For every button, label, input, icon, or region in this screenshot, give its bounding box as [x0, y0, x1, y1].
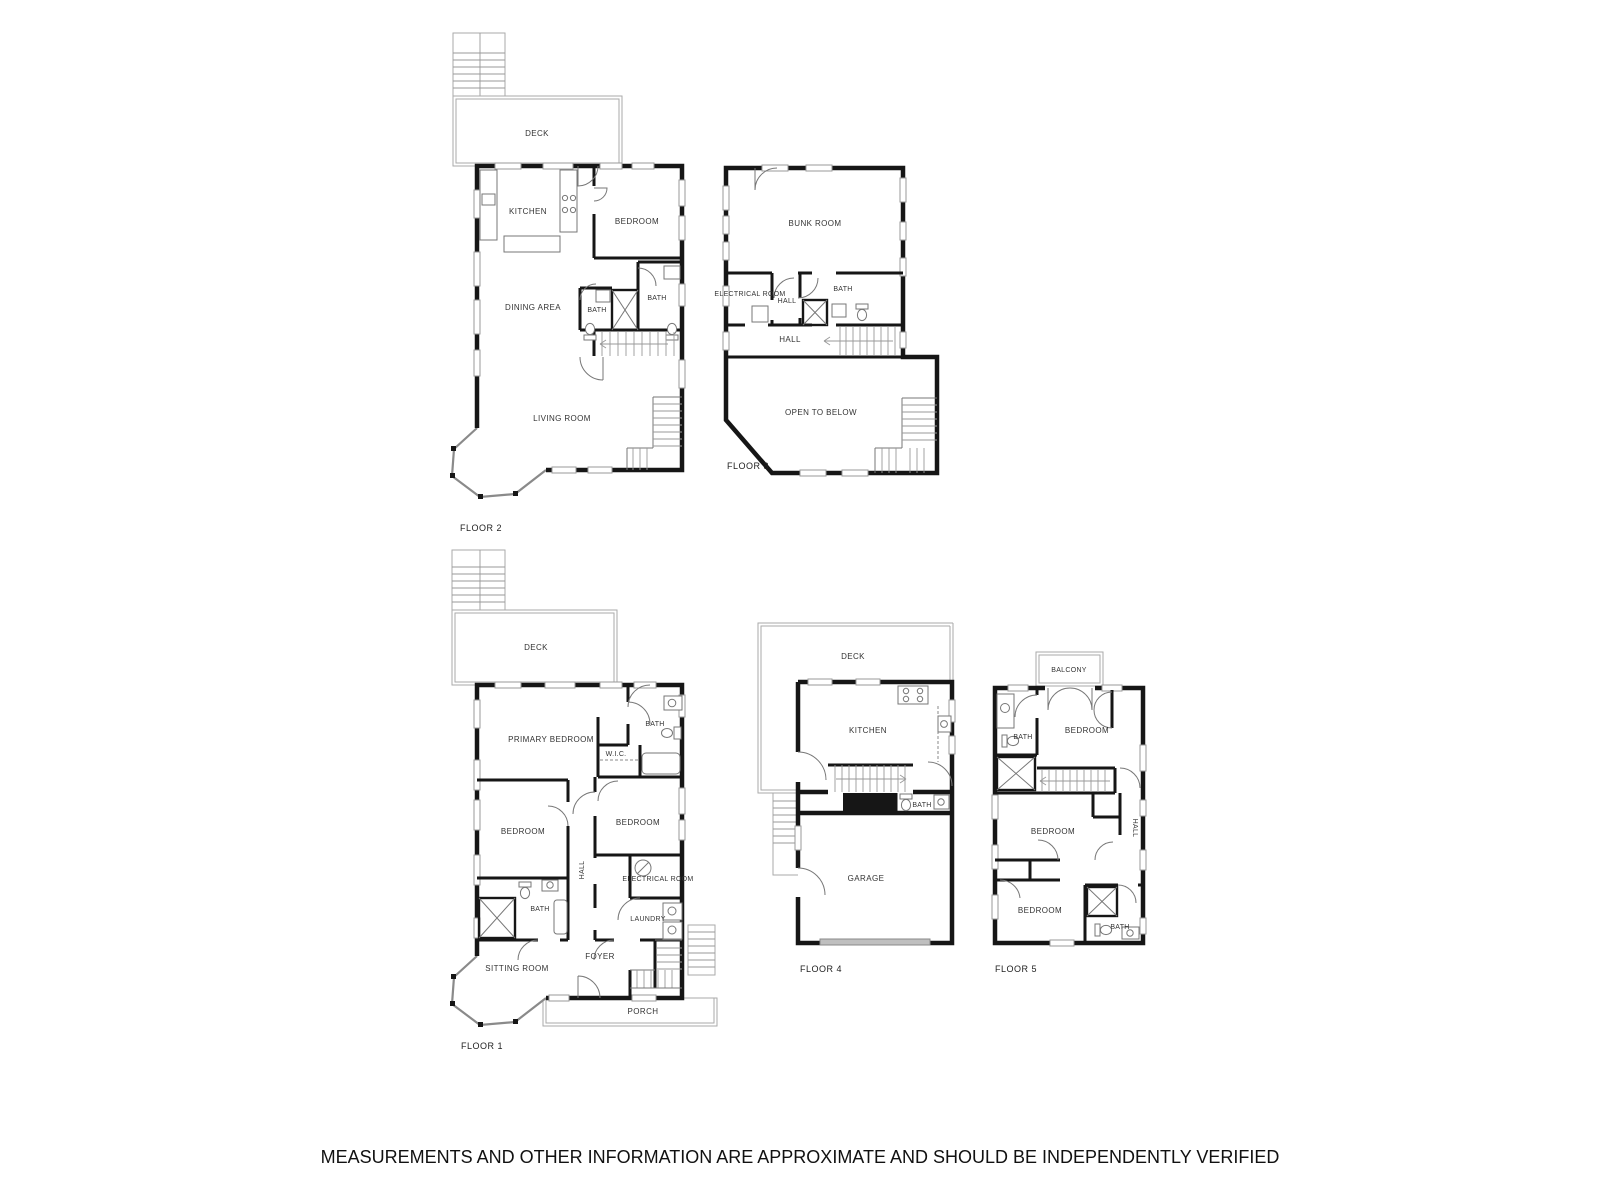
floor1-foyer-label: FOYER	[585, 952, 615, 961]
floor5-bath-lower-label: BATH	[1110, 924, 1129, 931]
floorplan-canvas: DECK KITCHEN BEDROOM DINING AREA BATH BA…	[0, 0, 1600, 1200]
floor-3-plan: BUNK ROOM ELECTRICAL ROOM HALL BATH HALL…	[714, 165, 937, 476]
floor1-bath-lower-label: BATH	[530, 906, 549, 913]
floor3-open-label: OPEN TO BELOW	[785, 408, 857, 417]
floor5-bath-upper-label: BATH	[1013, 734, 1032, 741]
floor5-title: FLOOR 5	[995, 964, 1037, 974]
floor1-bedroom-right-label: BEDROOM	[616, 818, 660, 827]
floor1-hall-label: HALL	[579, 861, 586, 880]
floor1-laundry-label: LAUNDRY	[630, 916, 665, 923]
floor1-title: FLOOR 1	[461, 1041, 503, 1051]
floor1-primary-label: PRIMARY BEDROOM	[508, 735, 594, 744]
floor-5-plan: BALCONY BATH BEDROOM BEDROOM HALL BEDROO…	[992, 652, 1146, 974]
floor5-balcony-label: BALCONY	[1051, 667, 1087, 674]
floor-1-plan: DECK PRIMARY BEDROOM BATH W.I.C. BEDROOM…	[450, 550, 717, 1051]
disclaimer: MEASUREMENTS AND OTHER INFORMATION ARE A…	[0, 1147, 1600, 1168]
floor-4-plan: DECK KITCHEN BATH GARAGE FLOOR 4	[758, 623, 955, 974]
floor3-title: FLOOR 3	[727, 461, 769, 471]
floor3-bath-label: BATH	[833, 286, 852, 293]
floorplan-svg: DECK KITCHEN BEDROOM DINING AREA BATH BA…	[0, 0, 1600, 1200]
floor5-hall-label: HALL	[1131, 819, 1138, 838]
floor2-dining-label: DINING AREA	[505, 303, 561, 312]
floor5-bedroom-lower-label: BEDROOM	[1018, 906, 1062, 915]
floor2-bath-right-label: BATH	[647, 295, 666, 302]
floor5-bedroom-middle-label: BEDROOM	[1031, 827, 1075, 836]
floor2-deck-label: DECK	[525, 129, 549, 138]
floor1-bath-upper-label: BATH	[645, 721, 664, 728]
floor3-hall-upper-label: HALL	[778, 298, 797, 305]
floor-2-plan: DECK KITCHEN BEDROOM DINING AREA BATH BA…	[450, 33, 685, 533]
floor5-bedroom-upper-label: BEDROOM	[1065, 726, 1109, 735]
floor1-electrical-label: ELECTRICAL ROOM	[622, 876, 693, 883]
floor4-kitchen-label: KITCHEN	[849, 726, 887, 735]
floor2-bath-left-label: BATH	[587, 307, 606, 314]
floor-2-deck-stairs	[453, 33, 505, 96]
floor1-porch-label: PORCH	[628, 1007, 659, 1016]
floor3-bunk-label: BUNK ROOM	[789, 219, 842, 228]
floor2-title: FLOOR 2	[460, 523, 502, 533]
floor2-bedroom-label: BEDROOM	[615, 217, 659, 226]
floor2-living-label: LIVING ROOM	[533, 414, 591, 423]
floor4-bath-label: BATH	[912, 802, 931, 809]
floor-1-deck-stairs	[452, 550, 505, 610]
floor1-wic-label: W.I.C.	[606, 751, 627, 758]
floor2-kitchen-label: KITCHEN	[509, 207, 547, 216]
floor3-electrical-label: ELECTRICAL ROOM	[714, 291, 785, 298]
floor1-deck-label: DECK	[524, 643, 548, 652]
floor3-hall-lower-label: HALL	[779, 335, 801, 344]
floor4-garage-label: GARAGE	[848, 874, 885, 883]
floor1-sitting-label: SITTING ROOM	[485, 964, 548, 973]
floor4-title: FLOOR 4	[800, 964, 842, 974]
floor4-deck-label: DECK	[841, 652, 865, 661]
floor1-bedroom-left-label: BEDROOM	[501, 827, 545, 836]
